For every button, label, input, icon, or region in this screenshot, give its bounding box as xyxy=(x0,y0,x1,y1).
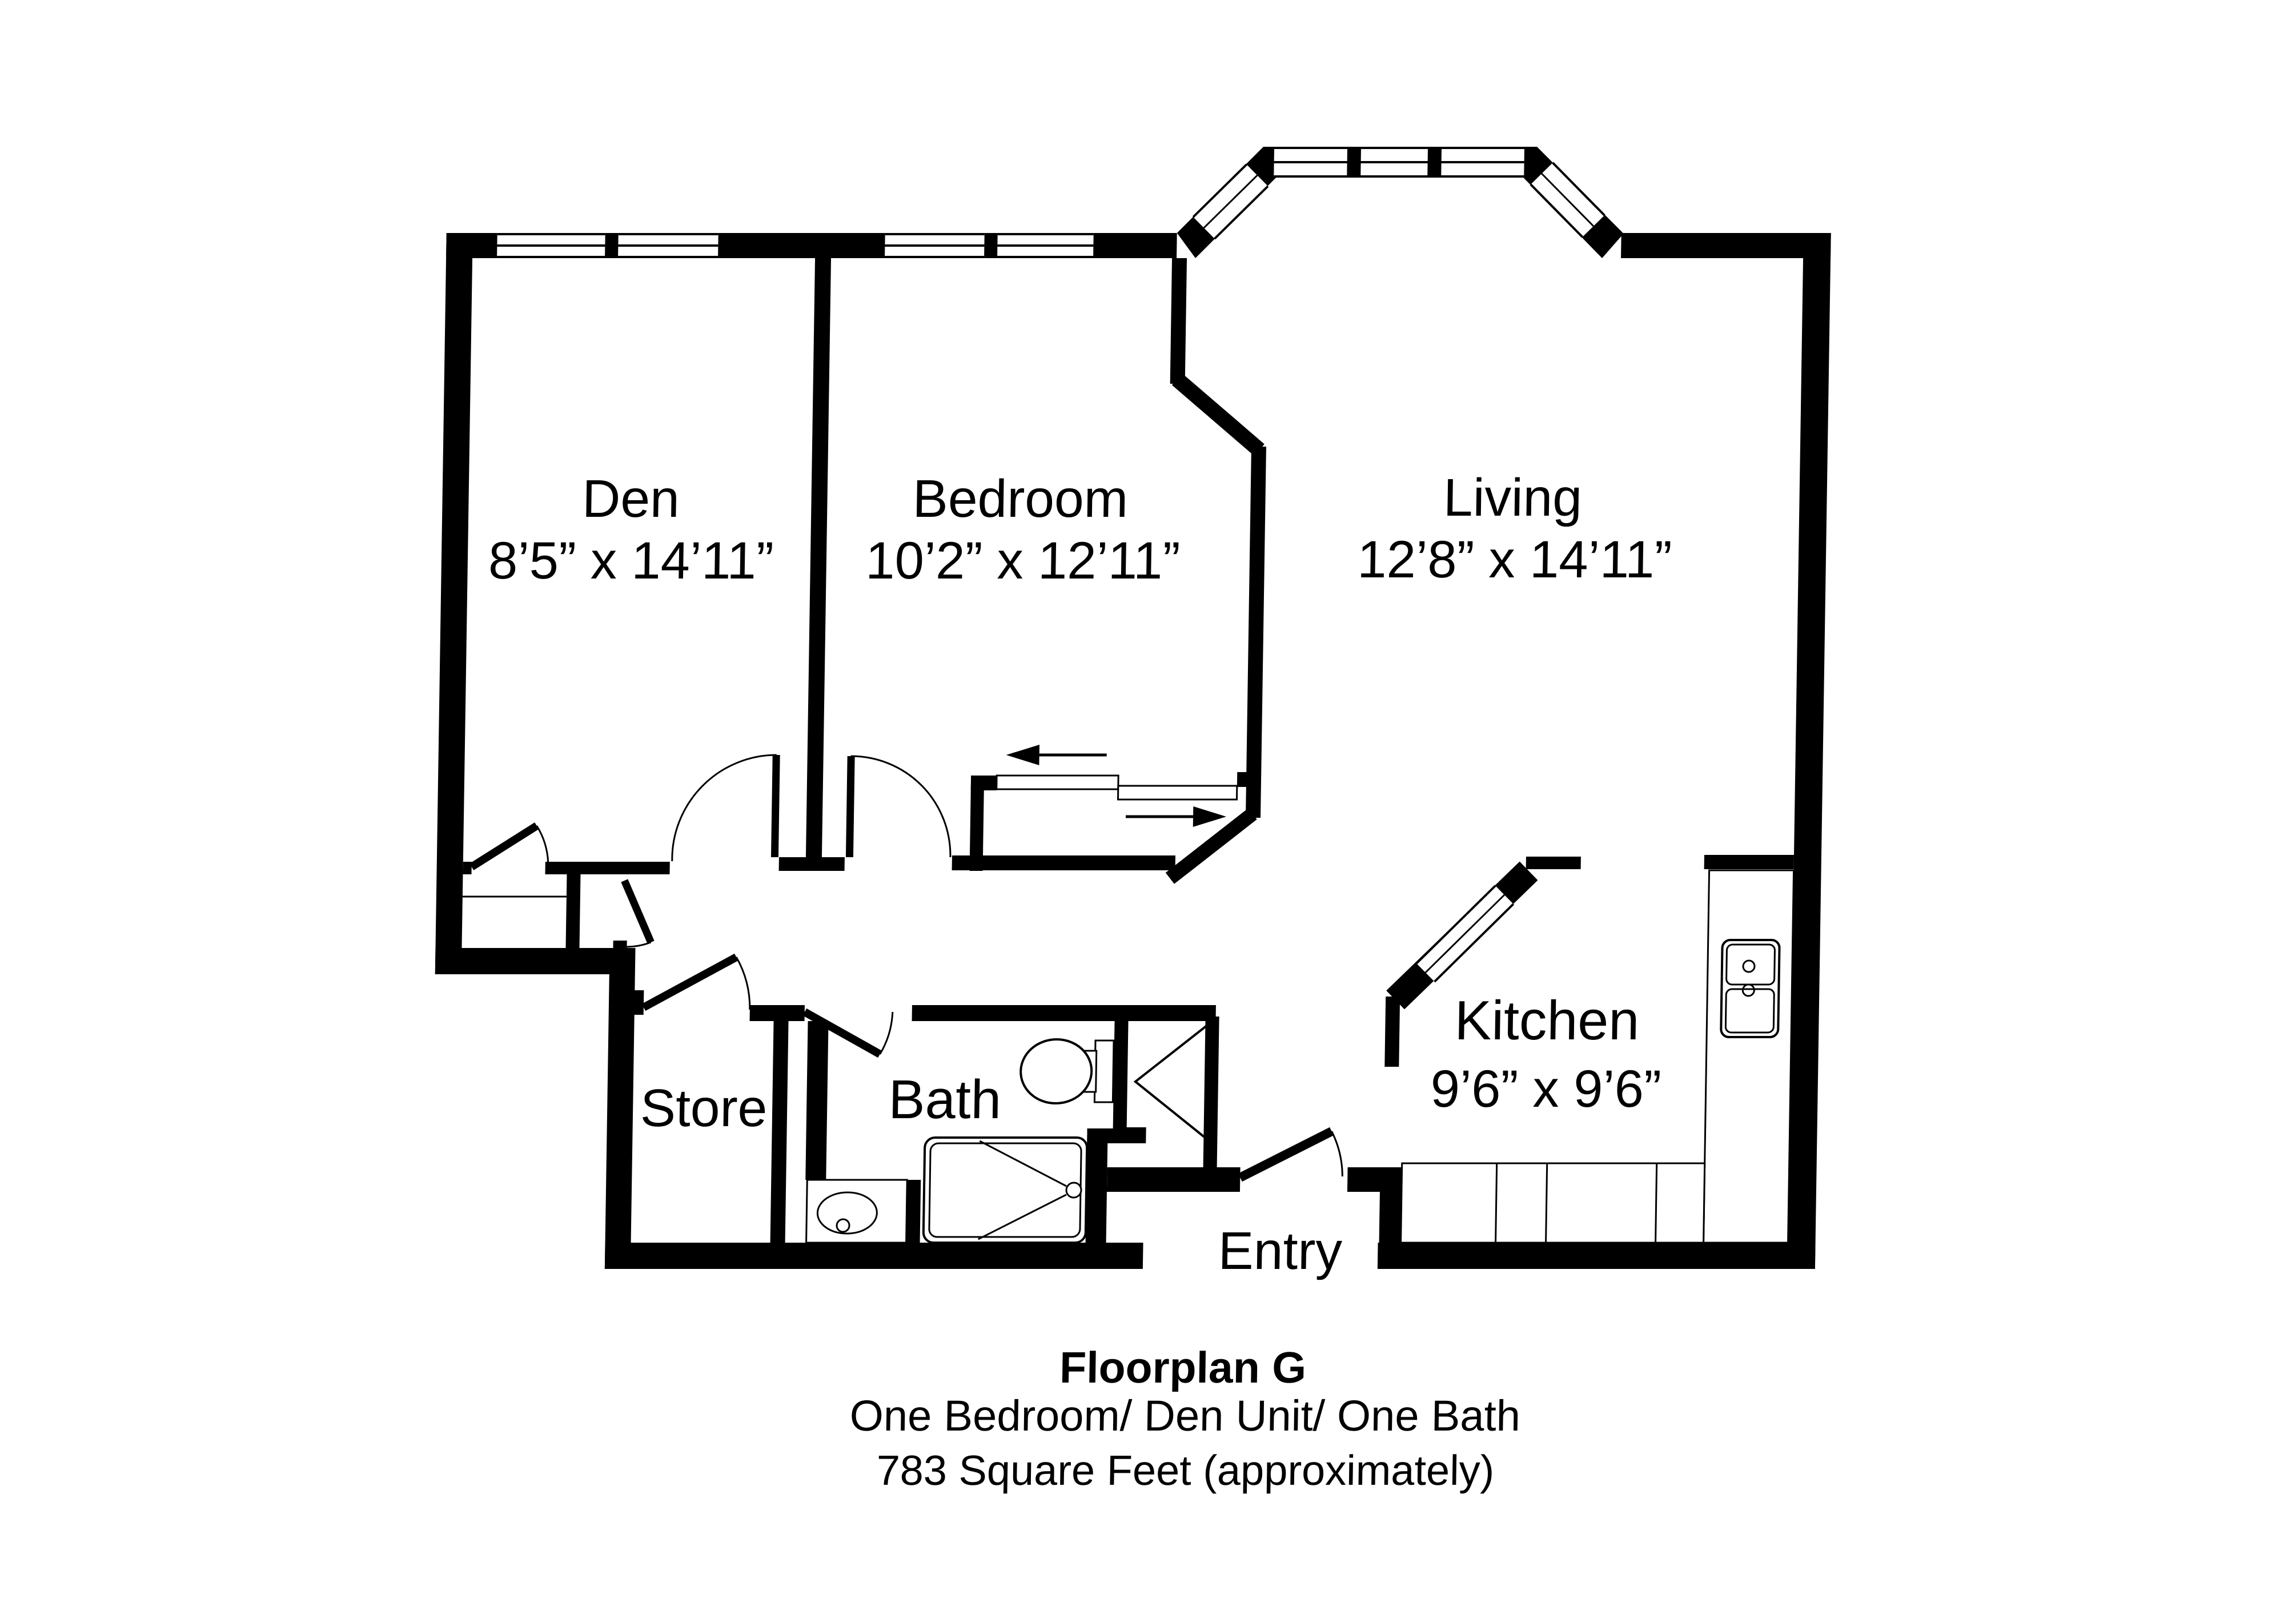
svg-text:Den: Den xyxy=(581,469,680,528)
svg-text:12’8” x 14’11”: 12’8” x 14’11” xyxy=(1357,531,1672,589)
svg-text:Bedroom: Bedroom xyxy=(912,469,1129,528)
svg-text:Kitchen: Kitchen xyxy=(1454,989,1640,1051)
svg-text:Store: Store xyxy=(640,1078,768,1138)
svg-text:Floorplan G: Floorplan G xyxy=(1059,1343,1307,1392)
svg-text:9’6” x 9’6”: 9’6” x 9’6” xyxy=(1430,1060,1661,1118)
svg-text:Entry: Entry xyxy=(1218,1221,1343,1280)
svg-text:One Bedroom/ Den Unit/ One Bat: One Bedroom/ Den Unit/ One Bath xyxy=(849,1392,1521,1440)
svg-text:Bath: Bath xyxy=(888,1069,1002,1130)
svg-text:783 Square Feet (approximately: 783 Square Feet (approximately) xyxy=(876,1447,1495,1494)
svg-text:10’2” x 12’11”: 10’2” x 12’11” xyxy=(865,532,1181,590)
svg-text:Living: Living xyxy=(1443,468,1583,527)
svg-text:8’5” x 14’11”: 8’5” x 14’11” xyxy=(488,532,774,590)
